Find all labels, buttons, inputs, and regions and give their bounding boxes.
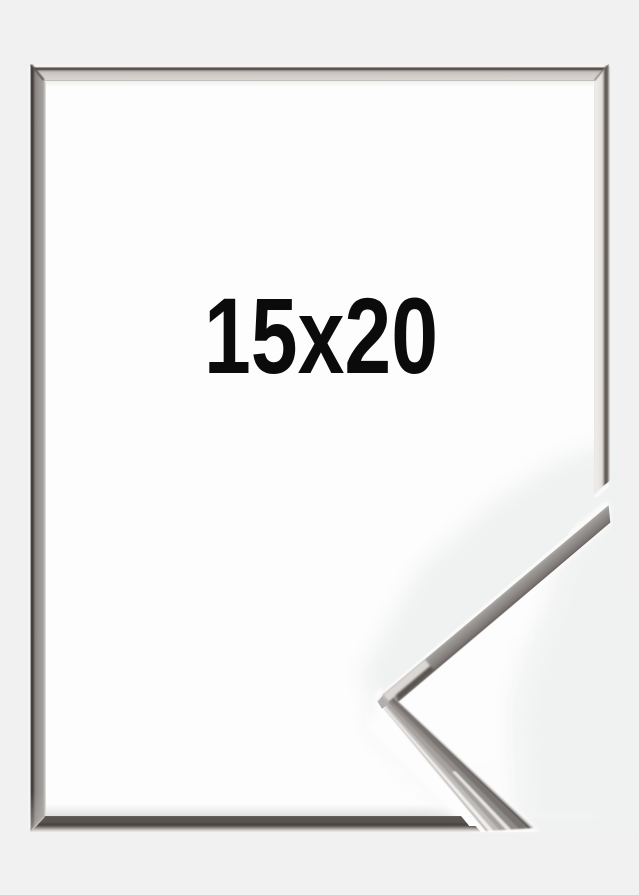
svg-text:15x20: 15x20 xyxy=(204,275,438,396)
